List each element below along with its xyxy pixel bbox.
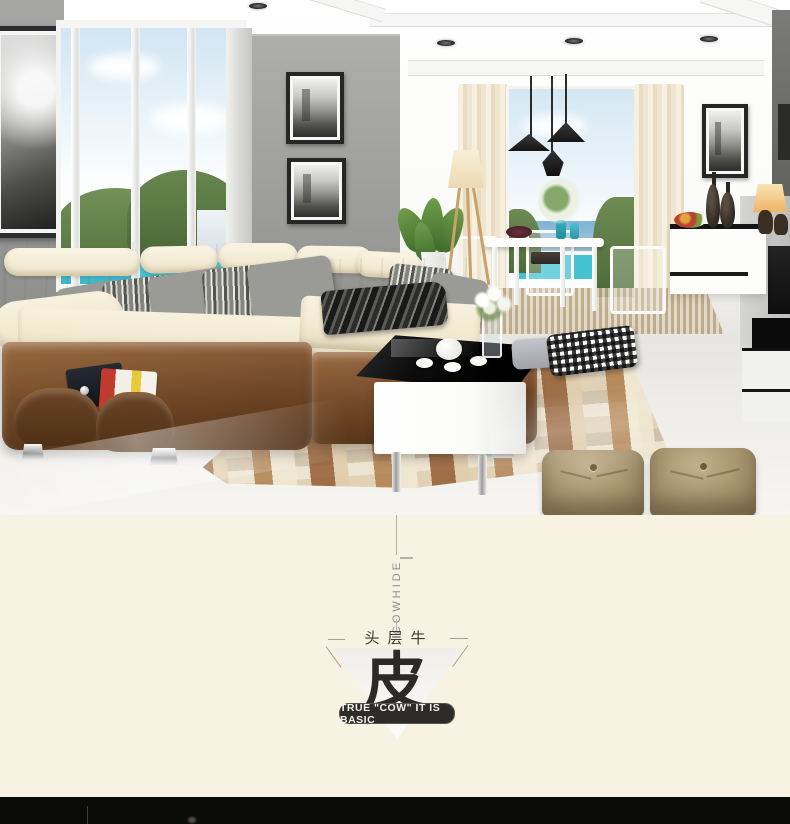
promo-section: COWHIDE 头层牛 皮 TRUE "COW" IT IS BASIC — [0, 515, 790, 797]
bottom-bar — [0, 797, 790, 824]
tv-cabinet — [742, 348, 790, 421]
bottle-vase — [706, 184, 720, 228]
recessed-light — [700, 36, 718, 42]
ceiling-cornice — [370, 13, 790, 27]
flower-bouquet — [468, 284, 516, 324]
chair-cushion — [616, 258, 655, 271]
small-frame — [778, 104, 790, 160]
sofa-back-roll — [4, 248, 140, 276]
cloud — [89, 54, 159, 80]
living-room-photo — [0, 0, 790, 515]
dining-table-top — [484, 238, 604, 247]
triangle-corner-dash-left — [328, 639, 345, 640]
table-centerpiece — [538, 178, 584, 224]
leather-ottoman — [650, 448, 756, 515]
tv-shelf — [752, 318, 790, 348]
floor-glare — [486, 382, 645, 487]
portrait-photo — [1, 35, 59, 229]
triangle-corner-dash-right — [450, 638, 468, 639]
floor-lamp-shade — [448, 150, 484, 188]
sideboard — [670, 224, 766, 294]
dining-chair — [610, 246, 666, 314]
bottom-bar-artifact-dot — [188, 817, 196, 823]
bottom-bar-artifact-line — [87, 806, 88, 824]
table-leg — [592, 247, 597, 311]
ottoman-button — [700, 463, 707, 470]
city-art — [294, 165, 339, 217]
product-promo-image: COWHIDE 头层牛 皮 TRUE "COW" IT IS BASIC — [0, 0, 790, 824]
recessed-light — [437, 40, 455, 46]
pendant-cord — [565, 74, 567, 126]
city-art-frame — [287, 158, 346, 224]
deer-figurine — [758, 210, 773, 234]
sideboard-art-frame — [702, 104, 748, 178]
tv-screen — [768, 246, 790, 314]
table-lamp-shade — [753, 184, 787, 212]
city-art-frame — [286, 72, 344, 144]
table-leg — [560, 247, 565, 307]
teal-vase — [570, 223, 579, 239]
sofa-emblem — [80, 386, 89, 395]
sideboard-art — [709, 111, 741, 171]
ceiling-cornice-diagonal — [300, 0, 386, 22]
pendant-cord — [530, 76, 532, 138]
ceiling-tray — [408, 60, 764, 76]
recessed-light — [565, 38, 583, 44]
teapot — [436, 338, 462, 360]
teacup — [444, 362, 461, 372]
ottoman-crease — [670, 470, 703, 479]
teacup — [470, 356, 487, 366]
coffee-table-leg — [392, 452, 401, 492]
city-art — [293, 79, 337, 137]
sideboard-base-trim — [670, 272, 748, 276]
coffee-table-leg — [478, 455, 487, 495]
ottoman-crease — [706, 468, 739, 477]
window-frame-top — [61, 20, 247, 28]
recessed-light — [249, 3, 267, 9]
teacup — [416, 358, 433, 368]
sofa-pocket — [14, 388, 100, 446]
grapes — [506, 226, 532, 238]
fruit-bowl — [674, 212, 706, 228]
right-accent-wall — [772, 10, 790, 196]
deer-figurine — [774, 214, 788, 235]
slogan-badge: TRUE "COW" IT IS BASIC — [339, 703, 455, 724]
bottle-vase — [720, 192, 735, 228]
